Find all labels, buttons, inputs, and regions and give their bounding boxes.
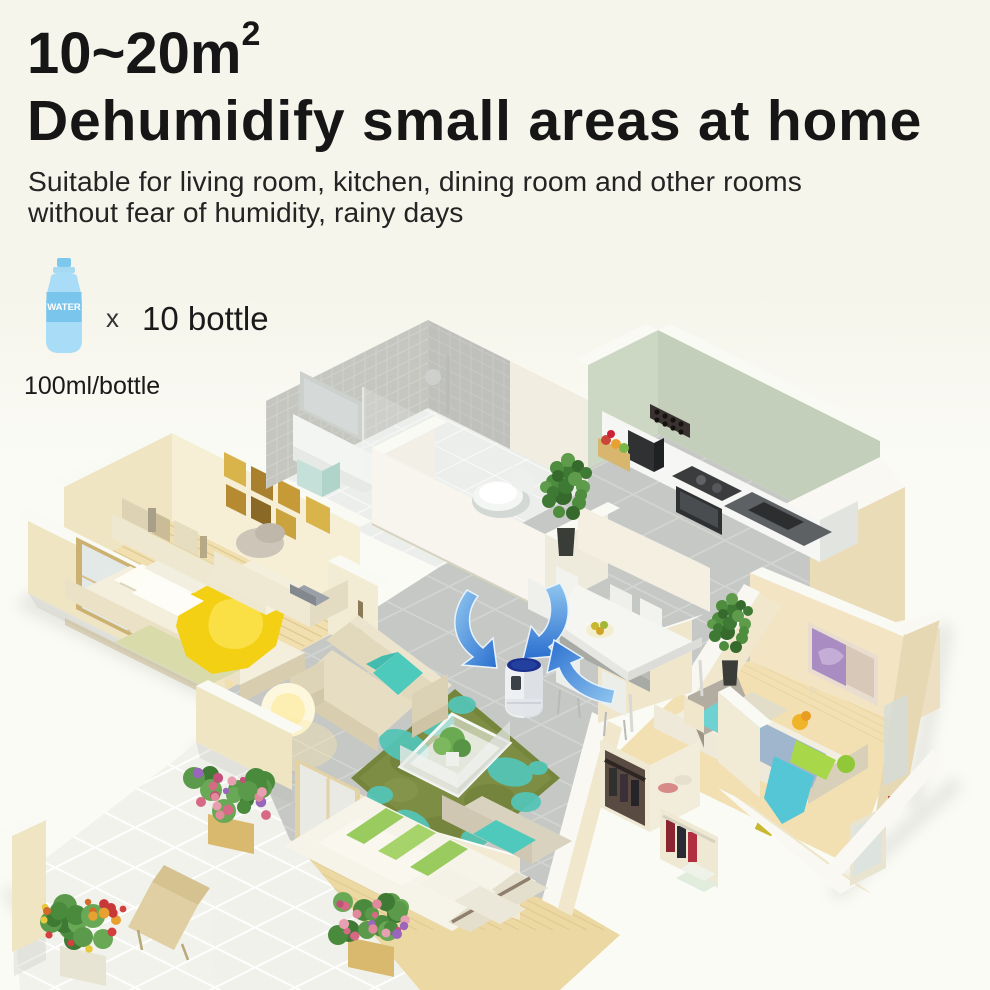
svg-text:WATER: WATER bbox=[47, 302, 81, 313]
